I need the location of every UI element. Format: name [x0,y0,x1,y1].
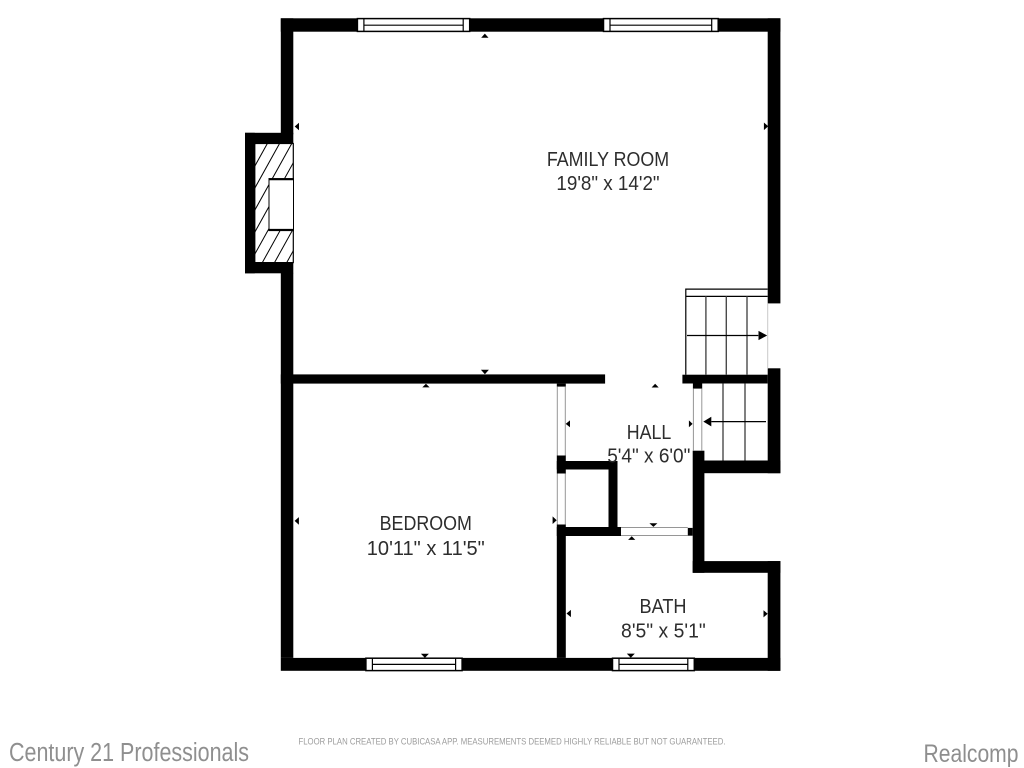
svg-text:8'5" x 5'1": 8'5" x 5'1" [621,621,706,643]
svg-text:Century 21 Professionals: Century 21 Professionals [9,739,249,767]
svg-text:BEDROOM: BEDROOM [380,513,472,535]
svg-text:BATH: BATH [640,596,687,618]
svg-text:Realcomp: Realcomp [924,740,1019,768]
svg-text:HALL: HALL [627,422,672,444]
svg-text:FAMILY ROOM: FAMILY ROOM [547,149,669,171]
svg-text:5'4" x 6'0": 5'4" x 6'0" [607,446,690,468]
svg-text:19'8" x 14'2": 19'8" x 14'2" [556,173,659,195]
svg-text:FLOOR PLAN CREATED BY CUBICASA: FLOOR PLAN CREATED BY CUBICASA APP. MEAS… [299,737,726,747]
svg-text:10'11" x 11'5": 10'11" x 11'5" [367,538,485,560]
